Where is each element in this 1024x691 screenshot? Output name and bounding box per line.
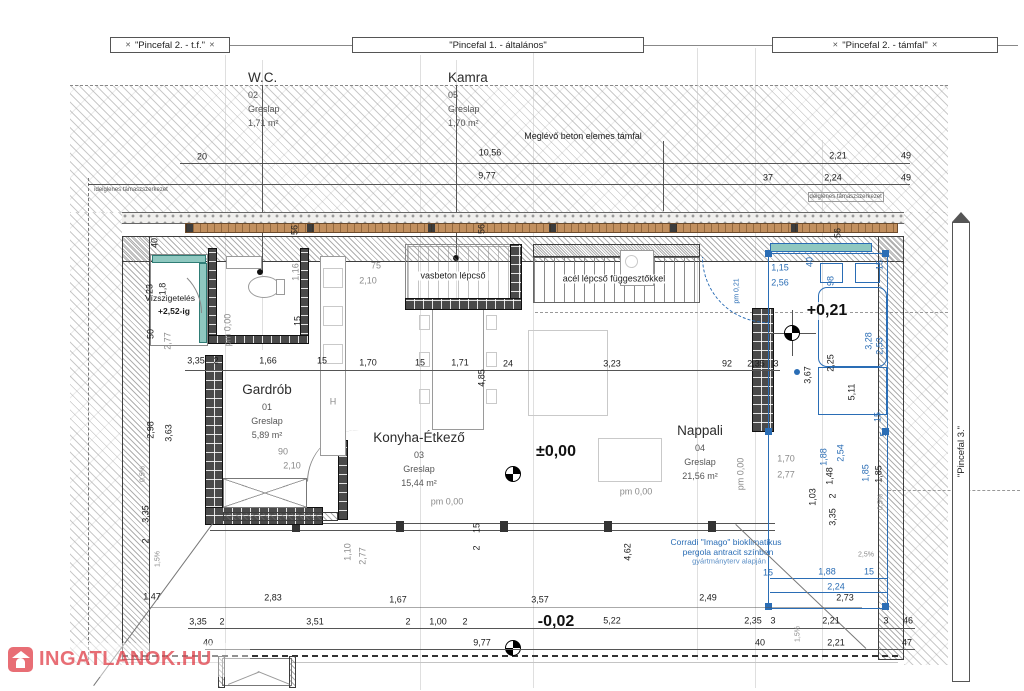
dimension-label: 2,98 <box>147 421 156 439</box>
note-pergola-3: gyártmányterv alapján <box>692 557 766 566</box>
dimension-line-blue <box>770 578 888 579</box>
dimension-label: 2,53 <box>876 337 885 355</box>
dimension-label: 49 <box>901 152 911 161</box>
fixture-basin <box>625 255 638 268</box>
wardrobe-cabinet <box>223 478 307 508</box>
level-symbol <box>505 466 521 482</box>
kitchen-appliance <box>323 306 343 326</box>
note-retaining-wall: Meglévő beton elemes támfal <box>524 131 642 141</box>
banner-label: "Pincefal 2. - t.f." <box>135 40 205 51</box>
dimension-label: 15 <box>415 359 425 368</box>
dimension-label: 9,77 <box>473 639 491 648</box>
wall-gardrob-ledge <box>223 512 338 521</box>
dimension-label: 2,21 <box>827 639 845 648</box>
dimension-label: 1,48 <box>826 467 835 485</box>
dimension-label: 2,54 <box>837 444 846 462</box>
dimension-label: pm 0,00 <box>431 498 464 507</box>
dimension-label: H <box>330 398 337 407</box>
dimension-line <box>188 628 915 629</box>
terrace-window-glazing <box>770 243 872 252</box>
room-area: 1,71 m² <box>248 117 280 131</box>
facade-mullion <box>500 521 508 532</box>
room-label-gardrob: Gardrób 01 Greslap 5,89 m² <box>242 380 292 443</box>
dimension-label: 1,10 <box>344 543 353 561</box>
dimension-label: pm 0,00 <box>620 488 653 497</box>
level-terrace: +0,21 <box>805 302 849 320</box>
dimension-label: 2,21 <box>822 617 840 626</box>
room-name: Konyha-Étkező <box>373 428 465 449</box>
dimension-label: 15 <box>864 568 874 577</box>
excavation-boundary-line <box>88 178 90 665</box>
room-label-konyha: Konyha-Étkező 03 Greslap 15,44 m² <box>373 428 465 491</box>
room-area: 1,70 m² <box>448 117 488 131</box>
banner-label: "Pincefal 2. - támfal" <box>842 40 927 51</box>
dimension-label: 40 <box>806 257 815 267</box>
section-banner-side: "Pincefal 3." <box>952 222 970 682</box>
note-waterproofing-level: +2,52-ig <box>158 306 190 316</box>
dimension-label: 3,67 <box>804 366 813 384</box>
room-number: 04 <box>677 442 723 456</box>
dimension-label: 23 <box>146 284 155 294</box>
facade-mullion <box>396 521 404 532</box>
grid-line <box>697 48 698 660</box>
dimension-label: 20 <box>197 153 207 162</box>
house-roof-shape <box>12 651 30 658</box>
wall-wc-left <box>208 248 217 343</box>
dimension-label: 1,15 <box>771 264 789 273</box>
dimension-label: 15 <box>874 412 883 422</box>
dimension-label: 2,5% <box>858 552 874 559</box>
soil-hatch-left <box>70 212 122 665</box>
leader-dot <box>257 269 263 275</box>
chair <box>486 315 497 330</box>
banner-label: "Pincefal 1. - általános" <box>449 40 547 51</box>
room-name: Gardrób <box>242 380 292 401</box>
dimension-label: pm 0,00 <box>224 314 233 347</box>
dimension-label: 5,11 <box>848 384 857 401</box>
dimension-label: 2,24 <box>824 174 842 183</box>
dimension-label: 1,85 <box>875 465 884 483</box>
dimension-label: 2 <box>405 618 410 627</box>
dimension-label: 1,88 <box>818 568 836 577</box>
note-pergola-1: Corradi "Imago" bioklimatikus <box>671 537 782 547</box>
dimension-line <box>180 163 910 164</box>
dimension-label: 3,35 <box>142 505 151 523</box>
dimension-label: 2,73 <box>836 594 854 603</box>
room-label-nappali: Nappali 04 Greslap 21,56 m² <box>677 421 723 484</box>
dimension-label: 3,57 <box>531 596 549 605</box>
dimension-label: 98 <box>827 276 836 286</box>
dimension-label: 15 <box>763 569 773 578</box>
dimension-label: 5,22 <box>603 617 621 626</box>
section-banner-left: ✕ "Pincefal 2. - t.f." ✕ <box>110 37 230 53</box>
room-name: W.C. <box>248 68 280 89</box>
dimension-label: 3,63 <box>165 424 174 442</box>
dimension-label: 40 <box>151 238 160 248</box>
room-floor: Greslap <box>242 415 292 429</box>
leader-line-retaining <box>663 141 664 211</box>
entry-window-glazing <box>152 255 206 263</box>
dimension-label: 10,56 <box>479 149 502 158</box>
dimension-label: 15 <box>294 316 303 326</box>
dimension-line <box>88 184 910 185</box>
dimension-label: 49 <box>901 174 911 183</box>
room-label-kamra: Kamra 05 Greslap 1,70 m² <box>448 68 488 131</box>
dimension-label: 15 <box>473 523 482 533</box>
dimension-label: 2 <box>213 357 218 366</box>
room-area: 21,56 m² <box>677 470 723 484</box>
room-name: Nappali <box>677 421 723 442</box>
dimension-label: 3 <box>773 360 778 369</box>
dimension-label: 1,16 <box>292 263 301 281</box>
level-ground: ±0,00 <box>534 443 578 461</box>
wc-sink <box>226 256 262 269</box>
room-name: Kamra <box>448 68 488 89</box>
banner-end-icon: ✕ <box>932 41 938 49</box>
dimension-label: pm 0,21 <box>734 278 741 303</box>
banner-end-icon: ✕ <box>125 41 131 49</box>
room-floor: Greslap <box>448 103 488 117</box>
temp-support-box <box>808 192 884 202</box>
dimension-label: 1,8 <box>159 283 168 296</box>
dimension-label: 2,77 <box>777 471 795 480</box>
dimension-label: 1,66 <box>259 357 277 366</box>
dimension-label: 37 <box>763 174 773 183</box>
stair-label-steel: acél lépcső függesztőkkel <box>560 275 669 284</box>
dimension-label: 1,67 <box>389 596 407 605</box>
dimension-label: 1,47 <box>143 593 161 602</box>
leader-dot-blue <box>794 369 800 375</box>
kitchen-appliance <box>323 268 343 288</box>
dimension-label: 2 <box>142 538 151 543</box>
dimension-label: 2 <box>462 618 467 627</box>
note-waterproofing: Vízszigetelés <box>145 293 195 303</box>
chair <box>419 315 430 330</box>
dimension-label: 1,85 <box>862 464 871 482</box>
dimension-line <box>150 607 862 608</box>
grid-line <box>420 55 421 690</box>
room-number: 03 <box>373 449 465 463</box>
room-area: 5,89 m² <box>242 429 292 443</box>
dimension-label: 92 <box>722 360 732 369</box>
dimension-label: 3,35 <box>187 357 205 366</box>
dimension-label: 1,70 <box>777 455 795 464</box>
pergola-post <box>765 428 772 435</box>
room-floor: Greslap <box>373 463 465 477</box>
dimension-label: 15 <box>317 357 327 366</box>
room-floor: Greslap <box>677 456 723 470</box>
dimension-label: 2,35 <box>747 360 765 369</box>
steel-stair-beam <box>533 244 700 257</box>
grid-line <box>225 55 226 660</box>
dimension-label: 56 <box>291 225 300 235</box>
dimension-label: 2,24 <box>827 583 845 592</box>
sofa <box>528 330 608 416</box>
dimension-line <box>205 649 915 650</box>
pergola-post <box>882 603 889 610</box>
room-floor: Greslap <box>248 103 280 117</box>
dimension-label: 47 <box>902 639 912 648</box>
dimension-label: 3,35 <box>829 508 838 526</box>
dimension-label: 2,10 <box>283 462 301 471</box>
dimension-label: 1,5% <box>795 626 802 642</box>
dimension-label: 0,5% <box>878 494 885 510</box>
dimension-label: 9,77 <box>478 172 496 181</box>
dimension-label: 56 <box>478 224 487 234</box>
note-temp-support-left: ideiglenes támaszszerkezet <box>94 187 168 193</box>
dimension-label: 1,71 <box>451 359 469 368</box>
house-door-shape <box>16 658 25 668</box>
dimension-label: 75 <box>371 262 381 271</box>
banner-end-icon: ✕ <box>209 41 215 49</box>
wc-toilet-tank <box>276 279 285 295</box>
dimension-label: 5 <box>880 431 889 436</box>
dimension-label: 2,83 <box>264 594 282 603</box>
dimension-label: 2 <box>829 493 838 498</box>
dimension-label: 3,23 <box>603 360 621 369</box>
dimension-label: 46 <box>903 617 913 626</box>
dimension-label: 2,77 <box>359 547 368 565</box>
facade-mullion <box>708 521 716 532</box>
chair <box>419 389 430 404</box>
dimension-label: 2 <box>219 618 224 627</box>
dimension-label: 2,56 <box>771 279 789 288</box>
dimension-label: 3,35 <box>189 618 207 627</box>
facade-mullion <box>604 521 612 532</box>
dimension-label: 3,51 <box>306 618 324 627</box>
dimension-label: 1,5% <box>155 551 162 567</box>
dimension-label: 2,10 <box>359 277 377 286</box>
wall-gardrob-left <box>205 355 223 525</box>
section-banner-center: "Pincefal 1. - általános" <box>352 37 644 53</box>
watermark-text: INGATLANOK.HU <box>39 648 212 671</box>
dimension-label: 1,03 <box>809 488 818 506</box>
dimension-label: 2,21 <box>829 152 847 161</box>
dimension-label: 4,85 <box>478 369 487 387</box>
level-symbol <box>784 325 800 341</box>
room-number: 05 <box>448 89 488 103</box>
dimension-label: 90 <box>278 448 288 457</box>
banner-end-icon: ✕ <box>832 41 838 49</box>
house-icon <box>8 647 33 672</box>
dimension-label: 4,62 <box>624 543 633 561</box>
side-banner-point <box>952 212 970 222</box>
dimension-label: 1,88 <box>820 448 829 466</box>
dimension-label: 2,77 <box>164 332 173 350</box>
chair <box>486 352 497 367</box>
floor-plan-canvas: ✕ "Pincefal 2. - t.f." ✕ "Pincefal 1. - … <box>0 0 1024 691</box>
banner-label: "Pincefal 3." <box>956 426 967 477</box>
stair-label-concrete: vasbeton lépcső <box>417 272 488 281</box>
room-number: 01 <box>242 401 292 415</box>
chair <box>486 389 497 404</box>
dimension-label: 50 <box>147 329 156 339</box>
dimension-label: 2,25 <box>827 354 836 372</box>
dimension-label: 3 <box>883 617 888 626</box>
lightwell-post <box>289 656 296 688</box>
dimension-line-blue <box>770 592 888 593</box>
soil-hatch-right <box>904 212 948 665</box>
wall-wc-right <box>300 248 309 343</box>
dimension-label: 2,49 <box>699 594 717 603</box>
room-label-wc: W.C. 02 Greslap 1,71 m² <box>248 68 280 131</box>
dimension-label: 3,28 <box>865 332 874 350</box>
dimension-label: 2,35 <box>744 617 762 626</box>
dimension-label: 0,5% <box>140 466 147 482</box>
room-area: 15,44 m² <box>373 477 465 491</box>
dimension-label: 2 <box>473 545 482 550</box>
section-banner-right: ✕ "Pincefal 2. - támfal" ✕ <box>772 37 998 53</box>
dimension-label: 40 <box>755 639 765 648</box>
watermark-logo[interactable]: INGATLANOK.HU <box>8 647 212 672</box>
dimension-label: 15 <box>876 260 885 270</box>
coffee-table <box>598 438 662 482</box>
dimension-label: 1,70 <box>359 359 377 368</box>
room-number: 02 <box>248 89 280 103</box>
dimension-label: 24 <box>503 360 513 369</box>
dimension-label: 1,00 <box>429 618 447 627</box>
pergola-post <box>882 250 889 257</box>
stair-wall-bottom <box>405 298 522 310</box>
dimension-label: 56 <box>834 228 843 238</box>
dimension-label: 3 <box>770 617 775 626</box>
dimension-label: pm 0,00 <box>737 458 746 491</box>
level-symbol <box>505 640 521 656</box>
